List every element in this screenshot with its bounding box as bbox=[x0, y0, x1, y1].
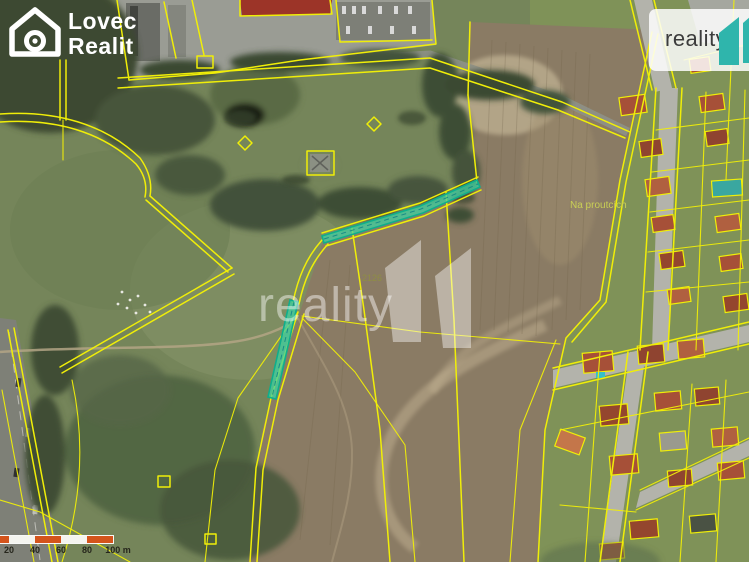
aerial-cadastral-map: Na proutcích 2126 bbox=[0, 0, 749, 562]
brand-line1: Lovec bbox=[68, 9, 137, 34]
reality-logo-badge: reality bbox=[649, 9, 749, 71]
lovec-realit-logo: Lovec Realit bbox=[6, 4, 137, 64]
scale-label: 60 bbox=[56, 545, 66, 555]
scale-bar-labels: 20 40 60 80 100 m bbox=[0, 545, 135, 557]
scale-bar: 20 40 60 80 100 m bbox=[0, 535, 135, 559]
scale-label: 80 bbox=[82, 545, 92, 555]
parcel-number-label: 2126 bbox=[362, 273, 382, 283]
reality-teal-glyph-icon bbox=[717, 3, 749, 77]
map-canvas[interactable]: Na proutcích 2126 reality Lovec Realit r… bbox=[0, 0, 749, 562]
scale-label: 20 bbox=[4, 545, 14, 555]
brand-line2: Realit bbox=[68, 34, 137, 59]
scale-bar-segments bbox=[0, 536, 113, 543]
field-name-label: Na proutcích bbox=[570, 200, 627, 211]
scale-label: 40 bbox=[30, 545, 40, 555]
house-lens-icon bbox=[6, 4, 64, 64]
scale-label: 100 m bbox=[105, 545, 131, 555]
